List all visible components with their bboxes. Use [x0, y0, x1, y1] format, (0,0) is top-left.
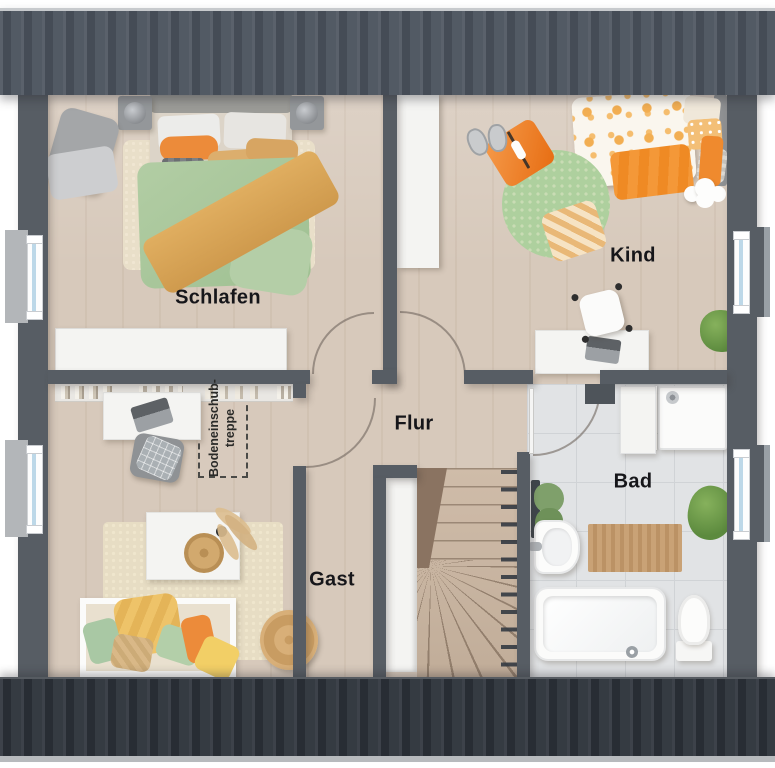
window-sill: [5, 230, 28, 323]
window-glass: [739, 240, 743, 305]
outer-wall-right: [727, 92, 757, 677]
wall-schlafen-south: [48, 370, 310, 384]
books: [277, 386, 291, 399]
attic-hatch-label: Bodeneinschub- treppe: [206, 373, 238, 483]
wall-shelf: [585, 384, 615, 404]
wall-stair-left: [373, 478, 386, 677]
wicker-tray: [184, 533, 224, 573]
wicker-pouf: [260, 610, 318, 670]
knit-pillow: [109, 633, 154, 673]
cloud-side-table: [684, 178, 726, 210]
wall-gast-flur-upper: [293, 384, 306, 398]
bedside-lamp: [296, 102, 318, 124]
wall-center: [372, 370, 397, 384]
toilet: [674, 595, 714, 661]
cloud-lobe: [696, 192, 714, 208]
wall-kind-south: [464, 370, 533, 384]
outer-wall-left: [18, 92, 48, 677]
window-gast: [27, 447, 43, 532]
orange-blanket: [609, 143, 694, 200]
staircase-side-panel: [386, 478, 417, 672]
chair-wheel: [571, 293, 579, 301]
tub-faucet: [626, 646, 638, 658]
room-label-schlafen: Schlafen: [175, 287, 261, 310]
staircase-railing: [501, 470, 517, 675]
room-label-flur: Flur: [395, 413, 434, 436]
roof-eave-edge: [0, 756, 775, 762]
room-label-bad: Bad: [614, 471, 653, 494]
floor-plan: Bodeneinschub- treppe: [0, 0, 775, 768]
wardrobe: [55, 328, 287, 374]
bed-headboard: [148, 93, 294, 113]
window-schlafen: [27, 237, 43, 318]
wall-bad-north: [600, 370, 727, 384]
wall-gast-flur-lower: [293, 466, 306, 677]
window-sill: [748, 227, 770, 317]
bedside-lamp: [124, 102, 146, 124]
wall-stair-stub: [373, 465, 417, 478]
kids-wardrobe: [397, 95, 439, 268]
roof-band-bottom: [0, 677, 775, 758]
shower-head: [666, 391, 679, 404]
room-label-kind: Kind: [610, 245, 656, 268]
bath-door-leaf: [529, 388, 534, 454]
basin-bowl: [542, 528, 572, 566]
bath-mat: [588, 524, 682, 572]
window-glass: [739, 458, 743, 531]
bathtub-basin: [543, 596, 657, 652]
window-sill: [748, 445, 770, 542]
window-bad: [734, 451, 750, 538]
window-sill: [5, 440, 28, 537]
attic-hatch-label-line1: Bodeneinschub-: [207, 379, 221, 477]
window-glass: [32, 454, 36, 525]
window-kind: [734, 233, 750, 312]
bathroom-cabinet: [620, 386, 656, 454]
toilet-bowl: [678, 595, 710, 645]
wall-stair-bad: [517, 452, 530, 677]
wall-schlafen-kind: [383, 92, 397, 384]
window-glass: [32, 244, 36, 311]
basin-faucet: [528, 542, 542, 551]
room-label-gast: Gast: [309, 569, 355, 592]
chair-wheel: [614, 282, 622, 290]
chair-seat: [578, 288, 627, 338]
roof-band-top: [0, 8, 775, 95]
attic-hatch-label-line2: treppe: [223, 409, 237, 447]
